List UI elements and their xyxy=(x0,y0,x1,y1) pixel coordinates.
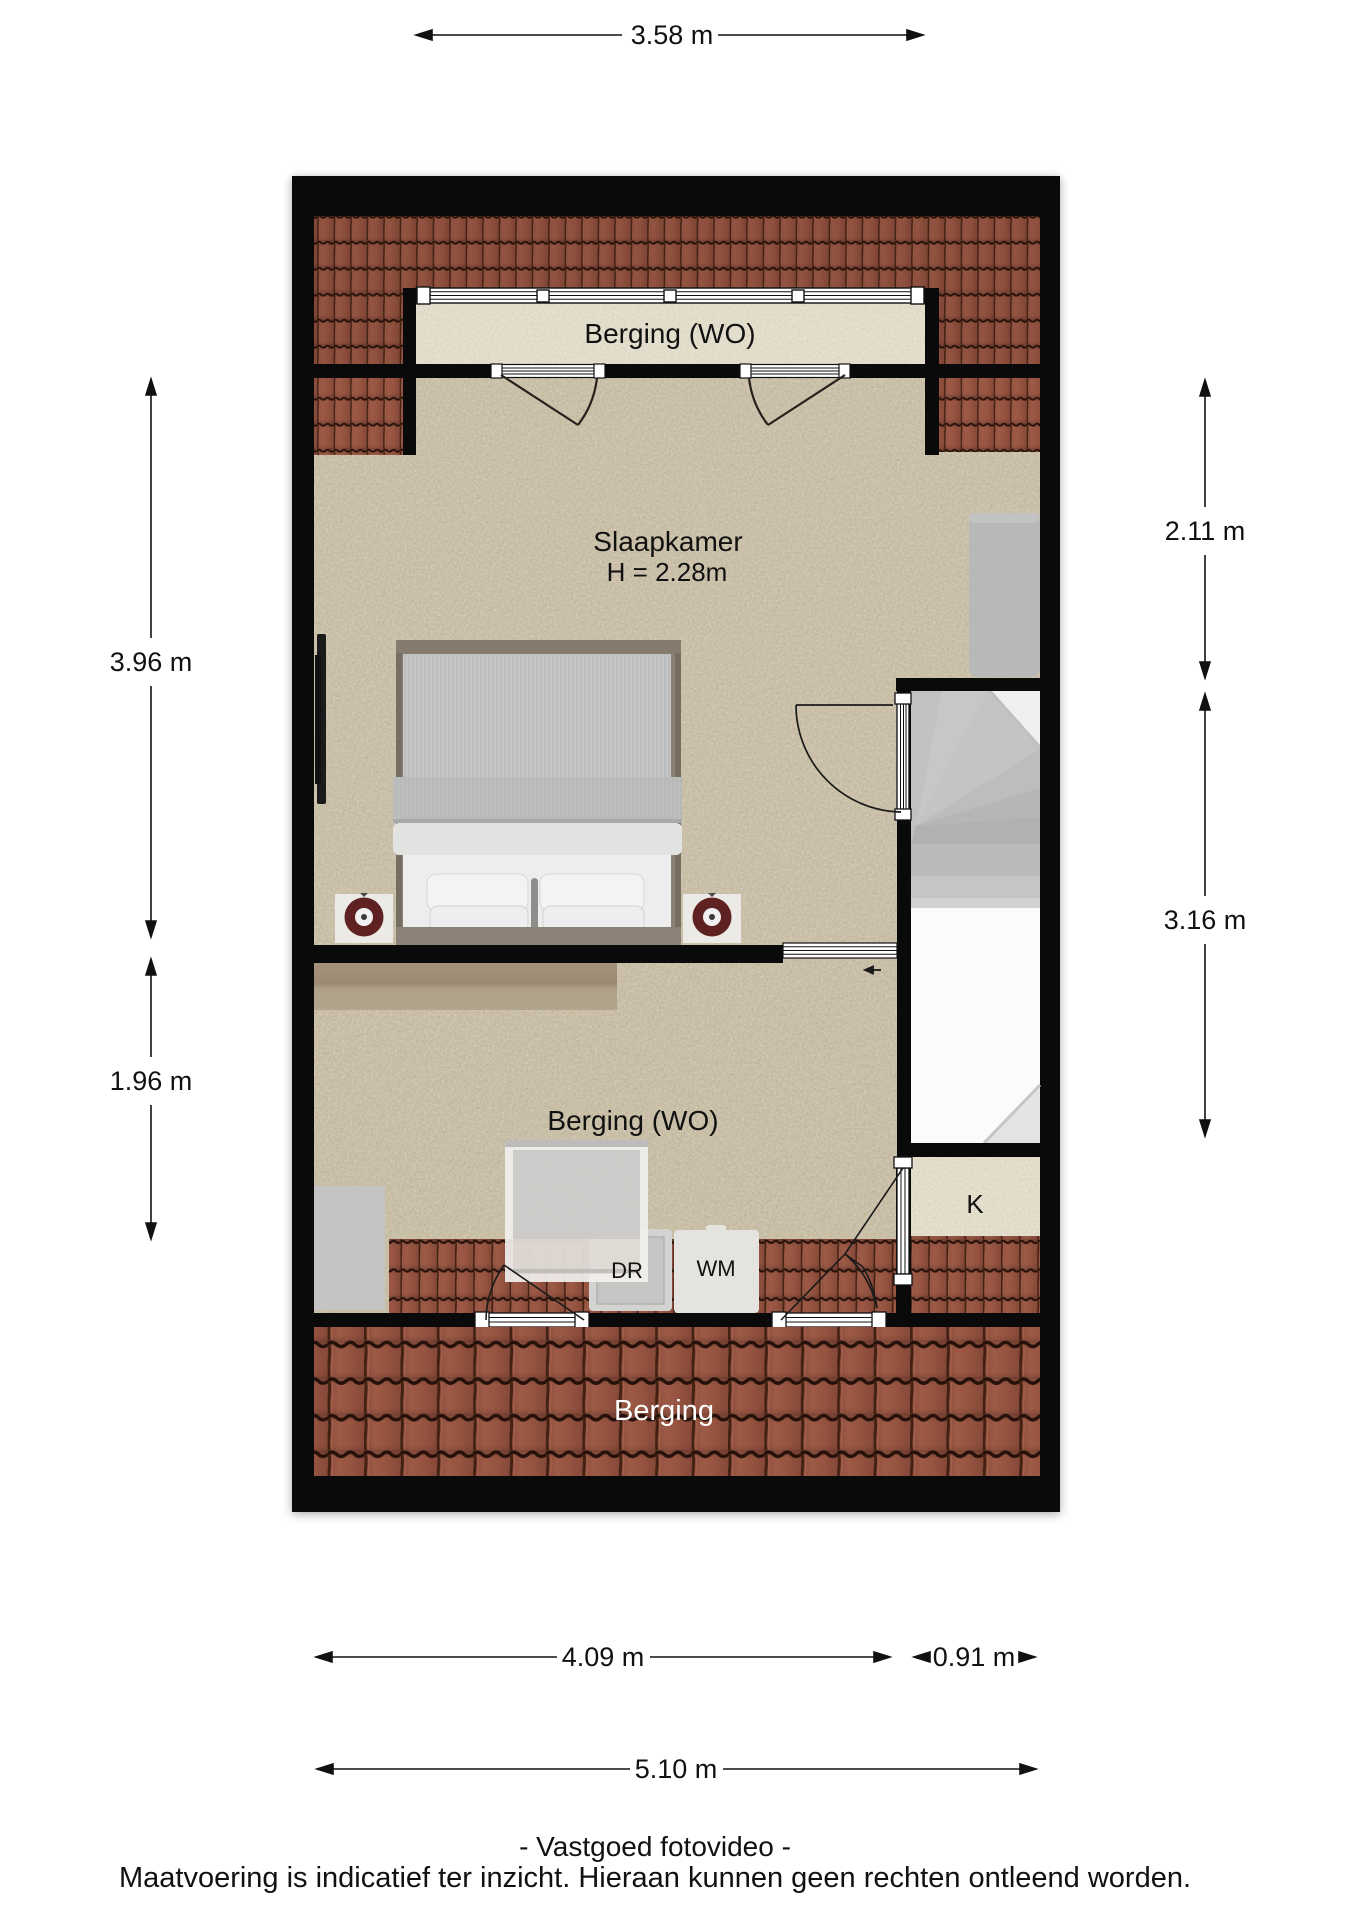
svg-text:Maatvoering is indicatief ter: Maatvoering is indicatief ter inzicht. H… xyxy=(119,1862,1191,1894)
svg-text:H = 2.28m: H = 2.28m xyxy=(607,557,728,587)
svg-text:Berging: Berging xyxy=(614,1395,714,1427)
svg-text:3.16 m: 3.16 m xyxy=(1164,905,1247,935)
svg-text:5.10 m: 5.10 m xyxy=(635,1754,718,1784)
svg-text:K: K xyxy=(966,1189,984,1219)
svg-text:Slaapkamer: Slaapkamer xyxy=(593,526,742,557)
svg-text:WM: WM xyxy=(696,1256,735,1281)
svg-text:2.11 m: 2.11 m xyxy=(1165,516,1246,546)
svg-text:4.09 m: 4.09 m xyxy=(562,1642,645,1672)
svg-text:DR: DR xyxy=(611,1258,643,1283)
svg-text:Berging (WO): Berging (WO) xyxy=(547,1105,718,1136)
svg-text:3.58 m: 3.58 m xyxy=(631,20,714,50)
svg-text:3.96 m: 3.96 m xyxy=(110,647,193,677)
svg-text:- Vastgoed fotovideo -: - Vastgoed fotovideo - xyxy=(519,1831,791,1862)
svg-text:Berging (WO): Berging (WO) xyxy=(584,318,755,349)
svg-text:0.91 m: 0.91 m xyxy=(933,1642,1016,1672)
svg-text:1.96 m: 1.96 m xyxy=(110,1066,193,1096)
